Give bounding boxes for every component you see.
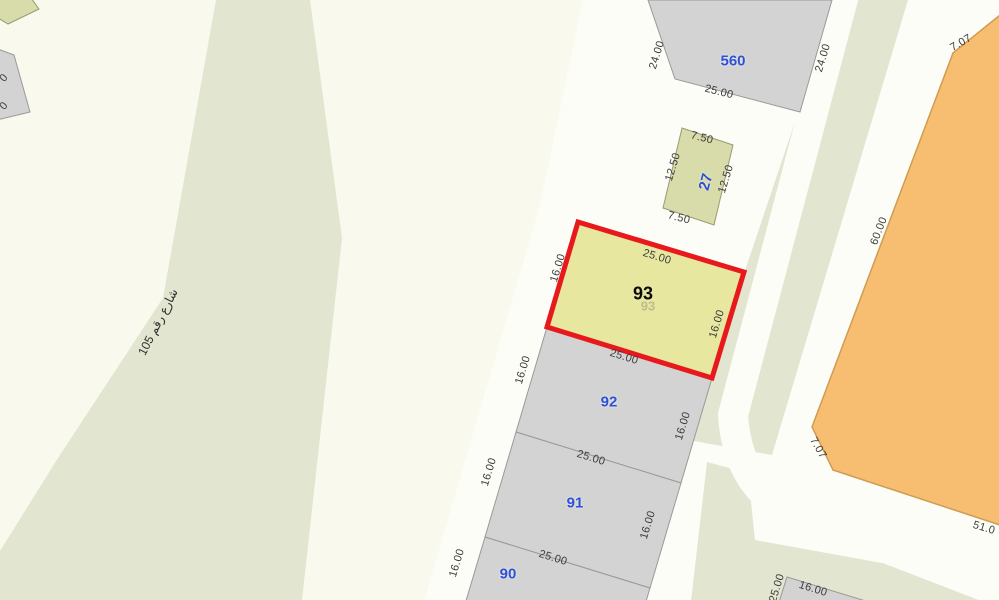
map-canvas[interactable] [0,0,999,600]
map-viewport[interactable]: شارع رقم 105 24.00 25.00 24.00 7.50 12.5… [0,0,999,600]
